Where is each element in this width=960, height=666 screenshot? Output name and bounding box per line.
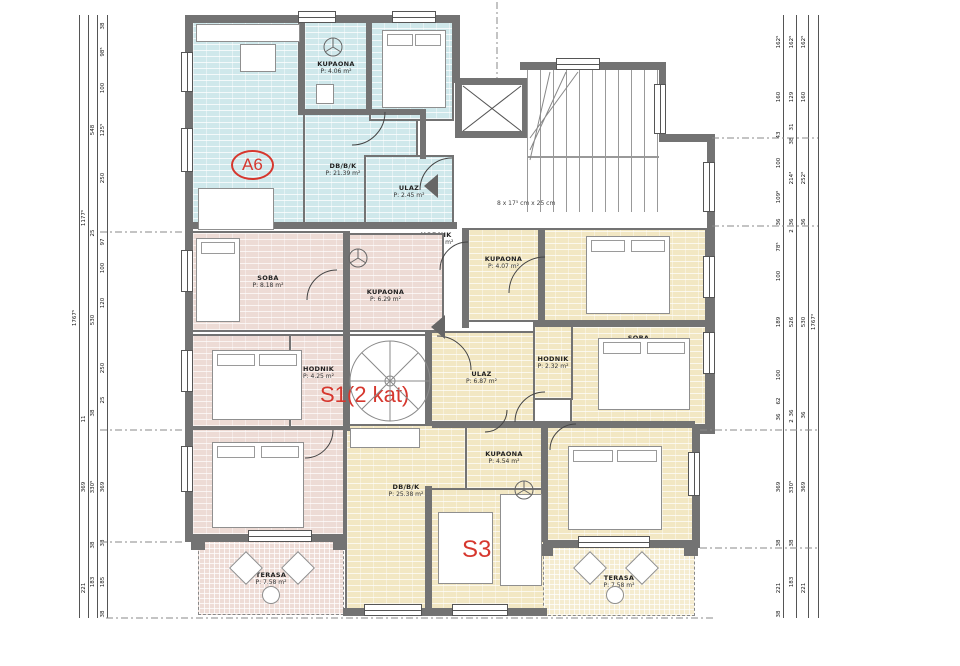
dimension-line: [818, 15, 819, 618]
room-area: P: 4.06 m²: [320, 68, 351, 75]
dimension-line: [796, 15, 797, 618]
dimension-label: 36: [776, 414, 782, 421]
kitchen-counter: [350, 428, 420, 448]
unit-label-a6: A6: [231, 150, 274, 180]
dimension-label: 162⁵: [789, 36, 795, 49]
pillow: [201, 242, 235, 254]
dimension-label: 221: [776, 583, 782, 594]
dimension-label: 369: [801, 482, 807, 493]
room-a6-kupaona: KUPAONA P: 4.06 m²: [303, 21, 369, 113]
wall: [541, 544, 553, 556]
room-s3-ulaz: ULAZ P: 6.87 m²: [428, 331, 535, 423]
dimension-label: 369: [100, 482, 106, 493]
unit-label-s1: S1(2 kat): [320, 382, 409, 408]
wall: [420, 109, 426, 159]
window: [654, 84, 666, 134]
pillow: [259, 354, 297, 366]
dimension-label: 38: [789, 540, 795, 547]
dimension-label: 369: [81, 482, 87, 493]
dimension-line: [107, 15, 108, 618]
window: [298, 11, 336, 23]
dimension-label: 38: [90, 542, 96, 549]
room-name: TERASA: [604, 574, 634, 582]
room-name: DB/B/K: [330, 162, 357, 170]
room-area: P: 2.32 m²: [537, 363, 568, 370]
bed: [598, 338, 690, 410]
dimension-label: 330⁵: [789, 481, 795, 494]
dimension-label: 31: [789, 124, 795, 131]
bed: [212, 442, 304, 528]
pillow: [415, 34, 441, 46]
dimension-label: 36: [801, 412, 807, 419]
stove: [240, 44, 276, 72]
dimension-label: 43: [776, 132, 782, 139]
bed: [382, 30, 446, 108]
pillow: [261, 446, 299, 458]
window: [392, 11, 436, 23]
wall: [462, 228, 469, 328]
dimension-label: 185: [100, 577, 106, 588]
dimension-label: 214³: [789, 172, 795, 185]
room-area: P: 2.45 m²: [393, 192, 424, 199]
room-name: HODNIK: [537, 355, 568, 363]
dimension-label: 38: [90, 410, 96, 417]
window: [452, 604, 508, 616]
dimension-label: 25: [100, 397, 106, 404]
room-name: KUPAONA: [367, 288, 405, 296]
wall: [452, 15, 460, 83]
terrace-table: [262, 586, 280, 604]
dimension-label: 330⁵: [90, 481, 96, 494]
room-area: P: 7.58 m²: [255, 579, 286, 586]
window: [556, 58, 600, 70]
wall: [533, 320, 707, 327]
wall: [425, 486, 432, 612]
dimension-label: 98⁵: [100, 47, 106, 56]
bed: [212, 350, 302, 420]
dimension-label: 189: [776, 317, 782, 328]
wall: [366, 15, 372, 115]
room-s3-kupaona1: KUPAONA P: 4.07 m²: [467, 228, 540, 322]
dimension-label: 250: [100, 363, 106, 374]
room-s3-terasa: TERASA P: 7.58 m²: [543, 546, 695, 616]
room-name: TERASA: [256, 571, 286, 579]
terrace-door: [578, 536, 650, 548]
window: [181, 446, 193, 492]
window: [181, 350, 193, 392]
dimension-label: 1767³: [811, 314, 817, 330]
room-name: ULAZ: [471, 370, 491, 378]
room-area: P: 21.39 m²: [326, 170, 361, 177]
dimension-line: [97, 15, 98, 618]
window: [688, 452, 700, 496]
dimension-label: 2: [789, 229, 795, 233]
unit-label-s3: S3: [462, 536, 491, 564]
dimension-label: 38: [776, 540, 782, 547]
pillow: [603, 342, 641, 354]
wall: [432, 421, 695, 428]
room-a6-ulaz: ULAZ P: 2.45 m²: [364, 155, 454, 227]
window: [181, 128, 193, 172]
dimension-label: 36: [801, 219, 807, 226]
dimension-label: 129: [789, 92, 795, 103]
dimension-label: 11: [81, 416, 87, 423]
dimension-label: 125⁵: [100, 124, 106, 137]
wall: [298, 109, 422, 115]
washing-machine: [316, 84, 334, 104]
dimension-label: 160: [776, 92, 782, 103]
dimension-label: 1177⁶: [81, 210, 87, 226]
dimension-label: 100: [100, 263, 106, 274]
stair-dimension-note: 8 x 17⁵ cm x 25 cm: [497, 200, 555, 207]
dimension-label: 526: [789, 317, 795, 328]
window: [181, 52, 193, 92]
bed: [196, 238, 240, 322]
pillow: [573, 450, 613, 462]
wall: [541, 424, 548, 542]
dimension-label: 36: [789, 219, 795, 226]
dimension-label: 97: [100, 239, 106, 246]
wall: [333, 538, 345, 550]
kitchen-counter: [196, 24, 300, 42]
pillow: [387, 34, 413, 46]
room-name: KUPAONA: [317, 60, 355, 68]
dimension-label: 548: [90, 125, 96, 136]
dimension-label: 162⁵: [776, 36, 782, 49]
bed: [568, 446, 662, 530]
terrace-door: [248, 530, 312, 542]
dimension-label: 183: [789, 577, 795, 588]
dimension-label: 25: [90, 230, 96, 237]
dimension-label: 252⁶: [801, 172, 807, 185]
terrace-table: [606, 586, 624, 604]
room-name: HODNIK: [303, 365, 334, 373]
floor-plan: DB/B/K P: 21.39 m² KUPAONA P: 4.06 m² SO…: [0, 0, 960, 666]
dimension-label: 100: [100, 83, 106, 94]
pillow: [591, 240, 625, 252]
dimension-label: 36: [776, 219, 782, 226]
elevator-shaft: [455, 78, 529, 138]
pillow: [647, 342, 685, 354]
dimension-label: 100: [776, 370, 782, 381]
dimension-label: 250: [100, 173, 106, 184]
dimension-label: 162⁵: [801, 36, 807, 49]
dimension-label: 221: [801, 583, 807, 594]
dimension-label: 38: [100, 23, 106, 30]
room-name: ULAZ: [399, 184, 419, 192]
pillow: [217, 354, 255, 366]
dimension-line: [88, 15, 89, 618]
dimension-line: [808, 15, 809, 618]
dimension-label: 109⁶: [776, 191, 782, 204]
dimension-label: 221: [81, 583, 87, 594]
room-area: P: 4.54 m²: [488, 458, 519, 465]
dimension-label: 38: [789, 138, 795, 145]
dimension-label: 100: [776, 158, 782, 169]
window: [703, 162, 715, 212]
room-area: P: 8.18 m²: [252, 282, 283, 289]
window: [181, 250, 193, 292]
wall: [684, 544, 698, 556]
room-name: KUPAONA: [485, 450, 523, 458]
dimension-label: 183: [90, 577, 96, 588]
dimension-label: 38: [100, 540, 106, 547]
window: [703, 256, 715, 298]
pillow: [617, 450, 657, 462]
window: [364, 604, 422, 616]
dining-table: [198, 188, 274, 230]
dimension-label: 36: [789, 410, 795, 417]
dimension-label: 1767⁵: [72, 310, 78, 326]
pillow: [217, 446, 255, 458]
dimension-label: 100: [776, 271, 782, 282]
dimension-label: 38: [100, 611, 106, 618]
dimension-label: 2: [789, 419, 795, 423]
room-s1-kupaona: KUPAONA P: 6.29 m²: [345, 233, 444, 332]
pillow: [631, 240, 665, 252]
dimension-label: 530: [801, 317, 807, 328]
staircase: [527, 70, 659, 212]
wall: [425, 331, 432, 425]
dimension-label: 120: [100, 298, 106, 309]
dimension-label: 62: [776, 398, 782, 405]
room-area: P: 4.25 m²: [303, 373, 334, 380]
dimension-line: [783, 15, 784, 618]
room-area: P: 6.87 m²: [466, 378, 497, 385]
room-area: P: 6.29 m²: [370, 296, 401, 303]
dimension-label: 530: [90, 315, 96, 326]
sofa: [500, 494, 542, 586]
wall: [538, 228, 545, 324]
stair-landing-line: [527, 156, 659, 158]
room-s3-kupaona2: KUPAONA P: 4.54 m²: [465, 424, 543, 490]
dimension-label: 369: [776, 482, 782, 493]
room-name: SOBA: [257, 274, 278, 282]
room-s3-hodnik: HODNIK P: 2.32 m²: [533, 324, 573, 400]
dimension-label: 78⁵: [776, 242, 782, 251]
wall: [191, 538, 205, 550]
dimension-line: [79, 15, 80, 618]
dimension-label: 160: [801, 92, 807, 103]
bed: [586, 236, 670, 314]
room-area: P: 25.38 m²: [389, 491, 424, 498]
room-name: KUPAONA: [485, 255, 523, 263]
dimension-label: 38: [776, 611, 782, 618]
room-area: P: 4.07 m²: [488, 263, 519, 270]
window: [703, 332, 715, 374]
room-name: DB/B/K: [393, 483, 420, 491]
